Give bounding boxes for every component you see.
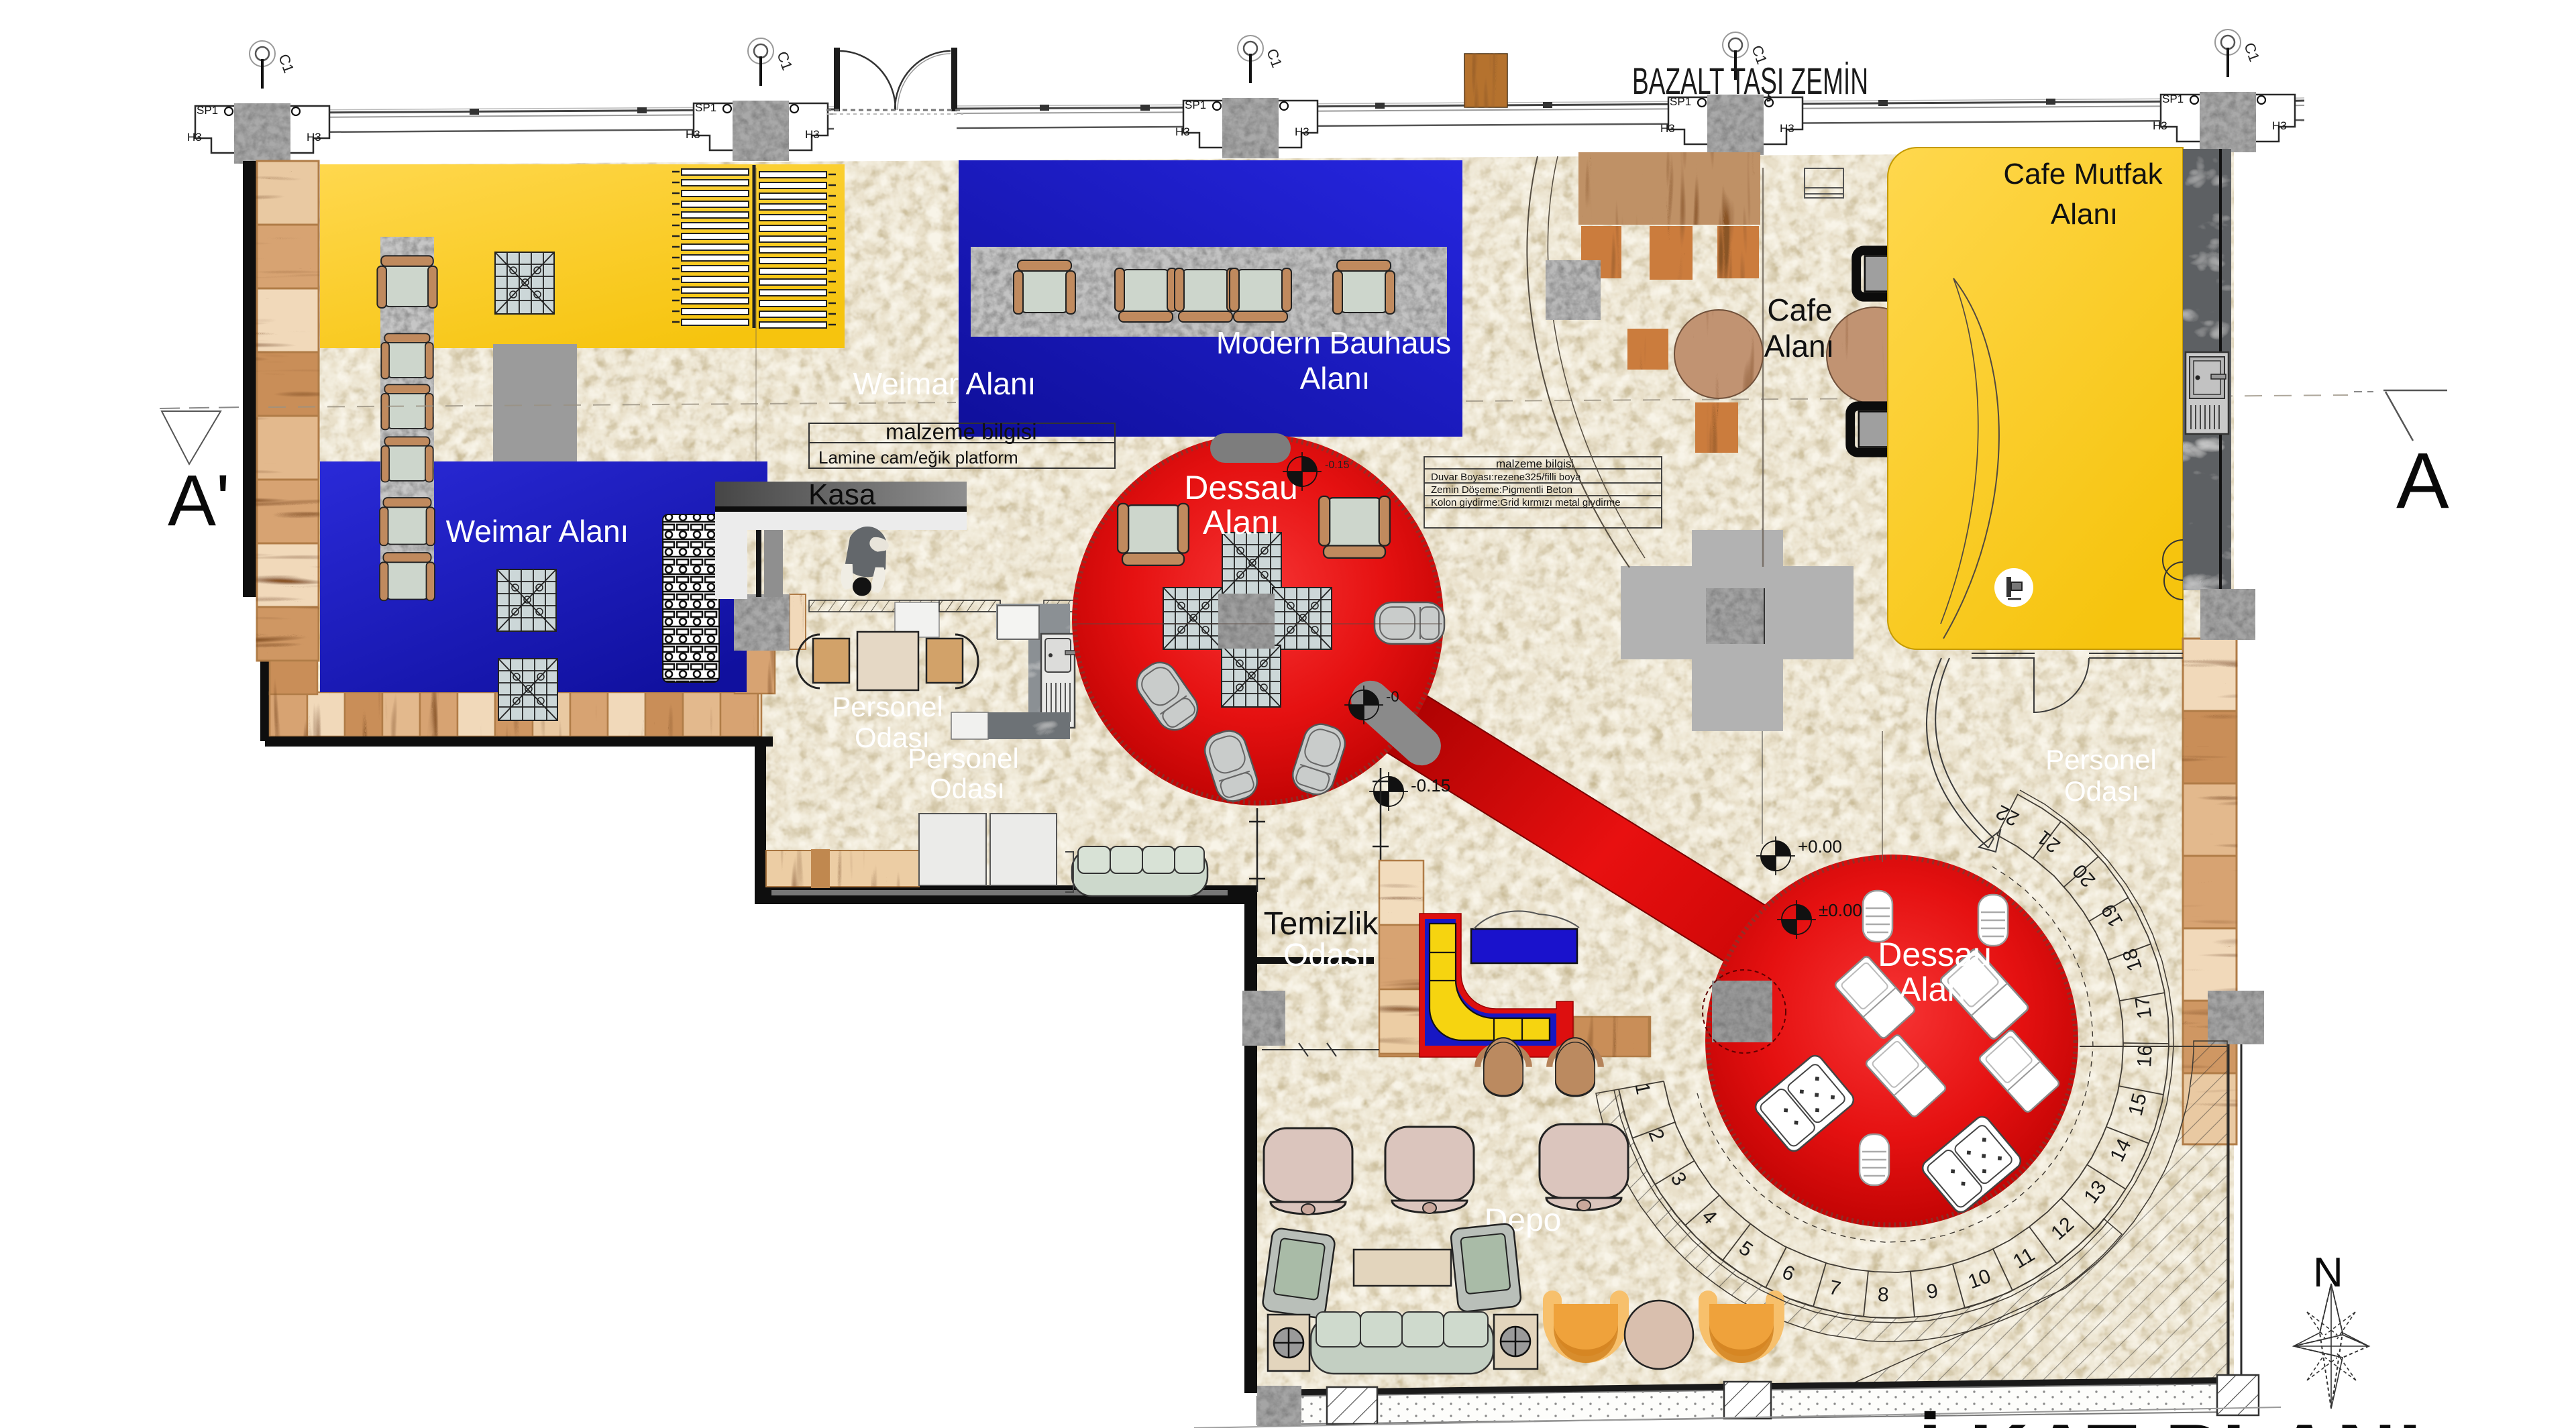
svg-text:-0: -0 xyxy=(1386,688,1399,705)
svg-text:H3: H3 xyxy=(1660,122,1675,135)
svg-text:Personel: Personel xyxy=(832,691,943,722)
svg-text:Duvar Boyası:rezene325/filli b: Duvar Boyası:rezene325/filli boya xyxy=(1431,472,1581,483)
svg-text:+0.00: +0.00 xyxy=(1798,836,1842,857)
svg-text:Dessau: Dessau xyxy=(1184,469,1298,506)
svg-text:Cafe Mutfak: Cafe Mutfak xyxy=(2003,158,2163,190)
svg-text:17: 17 xyxy=(2131,995,2156,1021)
svg-text:Modern Bauhaus: Modern Bauhaus xyxy=(1216,325,1451,360)
svg-text:SP1: SP1 xyxy=(197,104,218,117)
svg-text:H3: H3 xyxy=(2153,119,2167,132)
svg-text:A: A xyxy=(2396,437,2449,525)
svg-text:SP1: SP1 xyxy=(2162,93,2184,105)
svg-text:Weimar Alanı: Weimar Alanı xyxy=(853,366,1036,401)
svg-text:Zemin Döşeme:Pigmentli Beton: Zemin Döşeme:Pigmentli Beton xyxy=(1431,484,1572,496)
svg-text:Alanı: Alanı xyxy=(2051,198,2118,231)
svg-text:-0.15: -0.15 xyxy=(1325,459,1350,471)
svg-text:Personel: Personel xyxy=(908,743,1019,774)
svg-text:H3: H3 xyxy=(187,131,202,144)
svg-text:Cafe: Cafe xyxy=(1767,292,1832,327)
svg-text:Alanı: Alanı xyxy=(1203,504,1279,541)
svg-text:Personel: Personel xyxy=(2045,744,2157,775)
svg-text:H3: H3 xyxy=(1295,125,1309,138)
svg-text:BAZALT TAŞI ZEMİN: BAZALT TAŞI ZEMİN xyxy=(1632,60,1868,102)
svg-text:Dessau: Dessau xyxy=(1878,936,1992,973)
svg-text:H3: H3 xyxy=(2272,119,2287,132)
svg-text:Odası: Odası xyxy=(2064,775,2139,807)
svg-text:Weimar Alanı: Weimar Alanı xyxy=(446,514,629,549)
svg-text:H3: H3 xyxy=(1780,122,1794,135)
svg-text:İ.KAT PLANI: İ.KAT PLANI xyxy=(1919,1407,2424,1428)
svg-text:malzeme bilgisi: malzeme bilgisi xyxy=(885,419,1037,444)
svg-text:H3: H3 xyxy=(805,128,820,141)
svg-text:Odası: Odası xyxy=(1283,938,1369,973)
svg-text:Lamine cam/eğik platform: Lamine cam/eğik platform xyxy=(818,447,1018,468)
svg-text:Alanı: Alanı xyxy=(1764,329,1835,364)
svg-text:H3: H3 xyxy=(686,128,700,141)
svg-text:Kasa: Kasa xyxy=(808,478,876,511)
svg-text:N: N xyxy=(2313,1250,2343,1296)
svg-text:SP1: SP1 xyxy=(695,101,716,114)
svg-text:Odası: Odası xyxy=(930,773,1005,804)
svg-text:8: 8 xyxy=(1877,1284,1889,1307)
svg-text:A': A' xyxy=(168,459,230,541)
svg-text:H3: H3 xyxy=(307,131,321,144)
svg-text:malzeme bilgisi: malzeme bilgisi xyxy=(1496,457,1574,470)
svg-text:16: 16 xyxy=(2133,1044,2157,1068)
svg-text:±0.00: ±0.00 xyxy=(1819,900,1862,920)
svg-text:Alanı: Alanı xyxy=(1898,971,1975,1008)
svg-text:-0.15: -0.15 xyxy=(1411,775,1450,795)
svg-text:SP1: SP1 xyxy=(1185,99,1206,111)
svg-text:Kolon giydirme:Grid kırmızı me: Kolon giydirme:Grid kırmızı metal giydir… xyxy=(1431,497,1621,508)
svg-text:Temizlik: Temizlik xyxy=(1264,906,1379,942)
svg-text:Alanı: Alanı xyxy=(1300,361,1371,396)
svg-text:H3: H3 xyxy=(1175,125,1190,138)
